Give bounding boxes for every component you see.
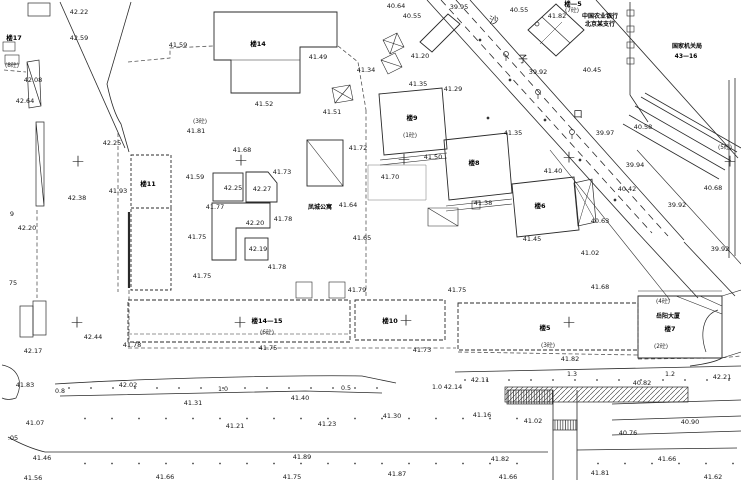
compound-fences	[4, 46, 741, 359]
hatch-areas	[505, 387, 688, 430]
map-linework	[0, 0, 741, 480]
topographic-map-canvas: 42.2242.5941.5942.0842.6441.8142.2541.49…	[0, 0, 741, 480]
